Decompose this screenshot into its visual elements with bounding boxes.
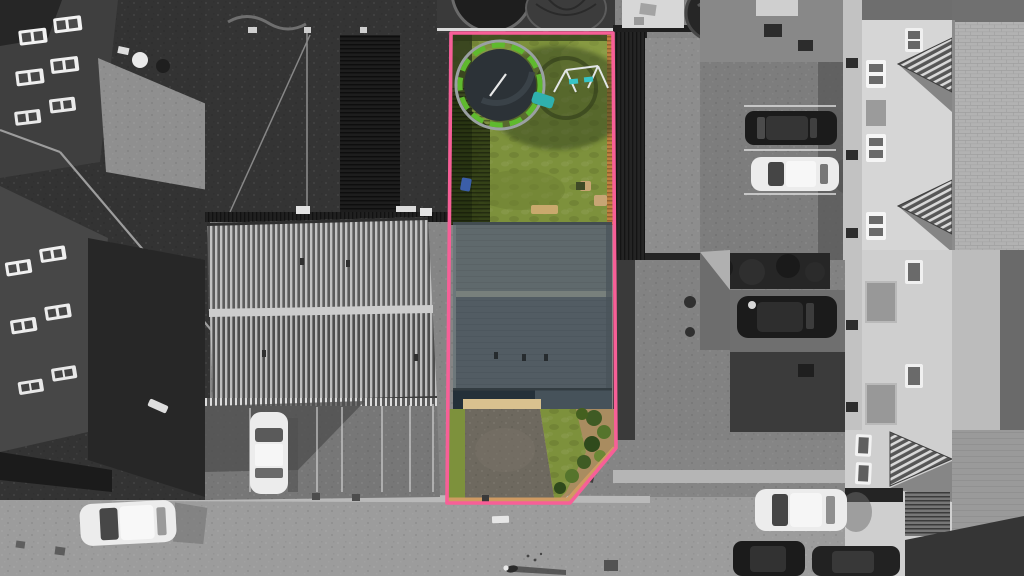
front-paving [463,399,541,409]
roof-vent-2 [522,354,526,361]
roof-left-gutter [453,225,456,390]
mid-roof [952,250,1000,430]
big-tiled-roof [952,20,1024,250]
manhole-cover [604,560,618,571]
road-drain [54,546,65,555]
front-path [843,0,863,250]
patio-firepit [156,59,170,73]
dark-lawn [730,352,845,432]
roof-left-edge [952,20,955,250]
centre-garden-texture [205,0,450,222]
white-car-left-parking [250,412,298,494]
aerial-photo-stage [0,0,1024,576]
warehouse-post-b [420,208,432,216]
mid-roof-dark-edge [1000,250,1024,430]
white-car-road-right [755,489,872,532]
right-houses-top [843,0,1024,252]
road-speck-a [527,555,530,558]
right-houses-middle [843,250,1024,430]
car-windscreen [757,117,765,139]
car-roof [766,116,808,140]
road-drain-2 [15,540,25,548]
white-car-road-left [79,498,209,551]
car-headlight [748,301,756,309]
pavement-drain-b [352,494,360,501]
path-shrub-c [846,228,858,238]
driveway-light-patch [475,428,535,472]
swing-seat-a [569,78,578,84]
shrub-2 [597,425,611,439]
porch-eave-line [453,388,612,391]
car-shadow [288,418,298,492]
deck-table [639,3,656,16]
car-windscreen [772,494,788,526]
white-fence-top [756,0,798,16]
white-car-parking [751,157,857,193]
shrub-1 [586,410,602,426]
shrub-3 [584,436,600,452]
pedestrian-head [503,565,508,570]
car-rear-glass [826,496,835,524]
shrub-6 [565,469,579,483]
road-speck-c [540,553,542,555]
planter-b [798,40,813,51]
planter-chair-b [594,195,607,206]
pavement-drain-a [312,493,320,500]
car-roof [255,444,283,466]
rear-boundary-fence [437,28,615,31]
roof-vent-1 [494,352,498,359]
car-rear-glass [156,507,166,535]
shrub-7 [554,482,566,494]
roof-ridge [453,291,612,297]
path-shrub-e [846,402,858,412]
dark-car-driveway [737,296,837,338]
small-tree-a [684,296,696,308]
right-parking-lot [700,0,857,260]
hedge-blob-c [776,254,800,278]
centre-gardens [205,0,450,222]
path-shrub-d [846,320,858,330]
fence-post-c [360,27,367,33]
window-pane [908,263,920,281]
grey-panel [866,100,886,126]
roof-vent-3 [544,354,548,361]
path-shrub-a [846,58,858,68]
warehouse-roof-upper-light [207,217,431,311]
car-roof [790,493,822,527]
car-rear-glass [255,468,283,478]
roof-top-dark [952,0,1024,22]
garage-door-a [866,282,896,322]
car-roof [119,505,155,541]
warehouse-building [207,206,437,405]
garage-door-b [866,384,896,424]
left-parking [205,398,440,501]
road-marking [492,516,509,524]
highlighted-plot [447,33,630,503]
swing-seat-b [584,76,593,82]
front-grass-left [447,409,467,503]
slatted-deck-lines [340,35,400,212]
dark-car-b-roof [832,551,874,573]
roof-right-shade [606,225,612,390]
dark-car-a-roof [750,546,786,572]
road-speck-b [534,559,537,562]
car-rear-glass [820,164,828,184]
slatted-gate-lines [905,492,950,536]
garden-above-plot [437,0,615,35]
car-rear-glass [806,303,814,329]
warehouse-post-a [296,206,310,214]
car-shadow [171,501,209,546]
roof-vent-a [300,258,304,265]
window-pane [908,367,920,385]
car-roof [757,302,803,332]
small-tree-b [685,327,695,337]
shrub-8 [576,408,588,420]
car-windscreen [768,162,784,186]
roof-tile-lines [453,222,612,390]
planter-a [764,24,782,37]
deck-chair [634,17,644,25]
path-shrub-b [846,150,858,160]
patio-table [132,52,148,68]
aerial-photo [0,0,1024,576]
plot-house [453,222,612,409]
lawn-shrub [798,364,814,377]
roof-vent-b [346,260,350,267]
roof-top-eave [453,222,612,225]
left-dark-garden [88,238,205,497]
window-pane [858,437,869,454]
garden-bench [531,205,558,214]
hedge-blob-d [805,262,825,282]
roof-vent-c [262,350,266,357]
edging-gate-mark [482,495,489,502]
grey-lawn-texture [645,38,700,258]
fence-post-a [248,27,257,33]
lawn-dark-item [576,182,585,190]
fence-post-b [304,27,311,33]
roof-vent-d [414,354,418,361]
hedge-blob-b [739,259,765,285]
car-windscreen [99,508,119,541]
car-roof [786,161,816,187]
window-pane [858,465,869,482]
fence-shadow-slats [613,30,647,260]
trampoline [456,41,544,129]
porch-roof-lit [535,390,612,409]
car-windscreen [255,428,283,442]
shrub-5 [577,455,591,469]
plot-interior [447,33,630,503]
dark-car-parking [745,111,837,145]
car-rear-glass [810,118,817,138]
